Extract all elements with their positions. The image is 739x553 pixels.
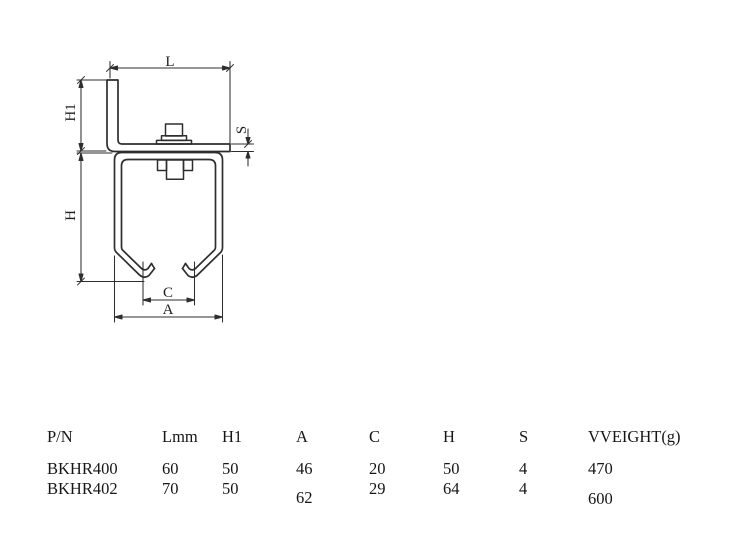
col-header-weight: VVEIGHT(g): [588, 428, 681, 445]
dim-label-L: L: [165, 54, 174, 70]
dim-label-H1: H1: [63, 103, 79, 121]
dimension-H1: [77, 77, 106, 155]
spec-sheet-page: L H1 H S C A P/N Lmm H1 A C H S VVEIGHT(…: [0, 0, 739, 553]
row1-pn: BKHR400: [47, 460, 118, 477]
row1-h1: 50: [222, 460, 239, 477]
channel-outline: [115, 153, 223, 278]
bolt-head: [157, 124, 192, 144]
row2-lmm: 70: [162, 480, 179, 497]
row1-h: 50: [443, 460, 460, 477]
dim-label-A: A: [163, 302, 174, 318]
row2-weight: 600: [588, 490, 613, 507]
row2-h1: 50: [222, 480, 239, 497]
row2-s: 4: [519, 480, 527, 497]
row1-s: 4: [519, 460, 527, 477]
row2-h: 64: [443, 480, 460, 497]
col-header-h: H: [443, 428, 455, 445]
bolt-nut: [158, 160, 193, 179]
row1-lmm: 60: [162, 460, 179, 477]
row2-pn: BKHR402: [47, 480, 118, 497]
dimension-L: [107, 62, 234, 145]
row2-c: 29: [369, 480, 386, 497]
col-header-lmm: Lmm: [162, 428, 198, 445]
col-header-s: S: [519, 428, 528, 445]
dim-label-H: H: [63, 210, 79, 221]
row1-weight: 470: [588, 460, 613, 477]
dim-label-C: C: [163, 285, 173, 301]
col-header-h1: H1: [222, 428, 242, 445]
col-header-a: A: [296, 428, 308, 445]
dimension-H: [77, 153, 144, 285]
col-header-pn: P/N: [47, 428, 73, 445]
dim-label-S: S: [234, 126, 250, 134]
row1-c: 20: [369, 460, 386, 477]
col-header-c: C: [369, 428, 380, 445]
row1-a: 46: [296, 460, 313, 477]
row2-a: 62: [296, 489, 313, 506]
